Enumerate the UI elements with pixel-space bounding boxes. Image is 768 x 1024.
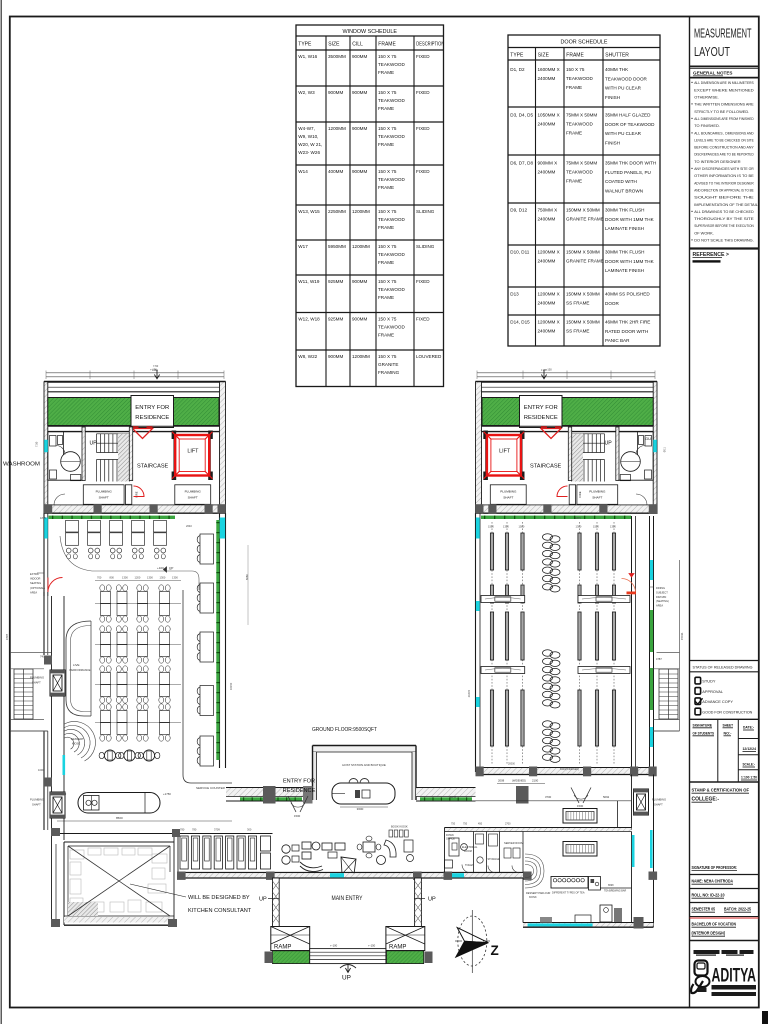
svg-text:PLUMBING: PLUMBING [185, 490, 202, 494]
svg-text:DOOR: DOOR [605, 301, 619, 306]
svg-text:FRAME: FRAME [566, 52, 584, 58]
svg-text:W20, W 21,: W20, W 21, [298, 142, 322, 147]
svg-text:TEAKWOOD: TEAKWOOD [378, 62, 405, 67]
svg-text:ALL BOUNDARIES , DIMENSIONS: ALL BOUNDARIES , DIMENSIONS AND [694, 130, 754, 135]
svg-text:LIVE: LIVE [73, 663, 80, 667]
svg-text:1200MM X: 1200MM X [538, 292, 560, 297]
svg-text:+-150: +-150 [150, 368, 157, 372]
svg-text:STAIRCASE: STAIRCASE [137, 464, 169, 470]
svg-text:1300: 1300 [576, 525, 582, 529]
svg-text:40MM SS POLISHED: 40MM SS POLISHED [605, 292, 650, 297]
svg-text:FRAME: FRAME [378, 185, 394, 190]
svg-text:ENTRY FOR: ENTRY FOR [524, 405, 558, 411]
svg-text:2640: 2640 [186, 524, 192, 528]
svg-text:150 X 75: 150 X 75 [378, 279, 397, 284]
svg-text:ALL DIMENSION ARE IN MILLIMETE: ALL DIMENSION ARE IN MILLIMETERS [694, 80, 754, 85]
svg-text:GOOD FOR CONSTRUCTION: GOOD FOR CONSTRUCTION [702, 710, 752, 715]
svg-text:W4-W7,: W4-W7, [298, 126, 315, 131]
svg-text:1:100 1:50: 1:100 1:50 [741, 776, 757, 780]
svg-text:GROUND FLOOR:9500SQFT: GROUND FLOOR:9500SQFT [312, 727, 377, 733]
svg-text:DINING: DINING [656, 586, 665, 590]
svg-text:FINISH: FINISH [605, 95, 620, 100]
svg-text:780: 780 [180, 828, 185, 832]
svg-text:46MM THK 2HR FIRE: 46MM THK 2HR FIRE [605, 320, 650, 325]
svg-text:GRANITE FRAME: GRANITE FRAME [566, 259, 604, 264]
svg-text:TEAKWOOD DOOR: TEAKWOOD DOOR [605, 76, 648, 81]
svg-text:FRAME: FRAME [566, 131, 582, 136]
svg-text:DESCRIPTION: DESCRIPTION [416, 42, 444, 48]
svg-text:SERVICE COUNTER: SERVICE COUNTER [196, 786, 226, 790]
svg-text:TEAKWOOD: TEAKWOOD [378, 287, 405, 292]
svg-text:900MM: 900MM [328, 354, 343, 359]
svg-text:1000: 1000 [38, 768, 44, 772]
svg-text:DESSERT: DESSERT [71, 737, 84, 741]
svg-text:FIXED: FIXED [416, 126, 430, 131]
svg-text:PLUMBING: PLUMBING [500, 490, 517, 494]
svg-text:APPROVAL: APPROVAL [702, 689, 724, 694]
svg-text:FRAME: FRAME [378, 106, 394, 111]
svg-text:1500: 1500 [577, 804, 584, 808]
svg-text:(SEATING): (SEATING) [656, 599, 669, 603]
svg-text:2400MM: 2400MM [538, 329, 556, 334]
svg-text:1500: 1500 [488, 525, 494, 529]
svg-text:7.50: 7.50 [663, 447, 667, 453]
svg-text:FRAME: FRAME [378, 42, 396, 48]
svg-text:150 X 75: 150 X 75 [378, 317, 397, 322]
svg-text:KITCHEN CONSULTANT: KITCHEN CONSULTANT [188, 908, 252, 914]
svg-text:300: 300 [247, 828, 252, 832]
svg-text:TEAKWOOD: TEAKWOOD [378, 252, 405, 257]
svg-text:750: 750 [463, 823, 468, 826]
svg-text:BOOK KIOSK: BOOK KIOSK [391, 825, 408, 829]
svg-text:16150: 16150 [467, 690, 471, 698]
svg-text:1500: 1500 [593, 525, 599, 529]
svg-text:35MM THK DOOR WITH: 35MM THK DOOR WITH [605, 161, 656, 166]
svg-text:6255: 6255 [450, 795, 457, 799]
svg-text:SIGNATURE OF PROFESSOR:: SIGNATURE OF PROFESSOR: [692, 865, 738, 870]
svg-text:WITH PU CLEAR: WITH PU CLEAR [605, 131, 642, 136]
svg-text:1200: 1200 [135, 576, 141, 580]
svg-text:GU: GU [645, 436, 651, 441]
svg-text:BATCH: 2022-25: BATCH: 2022-25 [724, 907, 751, 912]
svg-text:UP: UP [90, 441, 98, 447]
svg-text:AND DIRECTION OR APPROVAL IS T: AND DIRECTION OR APPROVAL IS TO BE [694, 187, 754, 192]
svg-text:UP: UP [342, 975, 351, 982]
svg-text:LIFT: LIFT [499, 449, 511, 455]
svg-text:TYPE: TYPE [510, 52, 524, 58]
svg-text:8698: 8698 [608, 884, 614, 887]
svg-text:SCALE:-: SCALE:- [743, 763, 756, 767]
svg-text:ALL DRAWINGS TO BE CHE: ALL DRAWINGS TO BE CHECKED [694, 209, 754, 214]
svg-text:1300: 1300 [160, 576, 166, 580]
svg-text:6400(WIDENED): 6400(WIDENED) [560, 768, 579, 771]
svg-text:SLIDING: SLIDING [416, 244, 435, 249]
svg-text:+-100: +-100 [330, 944, 338, 948]
svg-text:FIXED: FIXED [416, 90, 430, 95]
svg-text:W12, W18: W12, W18 [298, 317, 320, 322]
svg-text:W8, W22: W8, W22 [298, 354, 317, 359]
svg-text:1300: 1300 [122, 576, 128, 580]
svg-text:+1750: +1750 [163, 792, 171, 796]
svg-text:1300: 1300 [503, 525, 509, 529]
svg-text:REFERENCE >: REFERENCE > [693, 252, 729, 258]
svg-text:FRAMING: FRAMING [378, 370, 400, 375]
svg-text:RAMP: RAMP [389, 945, 406, 951]
svg-text:UP: UP [605, 441, 613, 447]
svg-text:900MM: 900MM [352, 317, 367, 322]
svg-text:ENTRY FOR: ENTRY FOR [135, 405, 169, 411]
svg-text:700: 700 [97, 576, 102, 580]
svg-text:ADITYA: ADITYA [712, 966, 757, 987]
svg-text:1600MM X: 1600MM X [538, 67, 560, 72]
svg-text:THOROUGHLY BY THE: THOROUGHLY BY THE SITE [694, 216, 754, 221]
svg-text:2400MM: 2400MM [538, 170, 556, 175]
svg-text:ROLL NO: ID-22-10: ROLL NO: ID-22-10 [692, 893, 725, 898]
svg-text:ANY DISCREPANCIES WITH SITE: ANY DISCREPANCIES WITH SITE OR [694, 166, 754, 171]
svg-text:1200MM: 1200MM [352, 209, 370, 214]
svg-text:1200MM: 1200MM [352, 244, 370, 249]
svg-text:NAME: NEHA CHITRODA: NAME: NEHA CHITRODA [692, 879, 734, 884]
svg-text:7.50: 7.50 [35, 441, 39, 447]
svg-text:GENERAL NOTES: GENERAL NOTES [693, 71, 732, 76]
svg-text:TEAKWOOD: TEAKWOOD [566, 76, 593, 81]
svg-text:30MM THK FLUSH: 30MM THK FLUSH [605, 250, 644, 255]
svg-text:1200MM X: 1200MM X [538, 320, 560, 325]
svg-text:SHAFT: SHAFT [32, 803, 41, 807]
svg-text:RESIDENCE: RESIDENCE [283, 788, 316, 794]
svg-text:TEAKWOOD: TEAKWOOD [378, 217, 405, 222]
svg-text:FRAME: FRAME [378, 225, 394, 230]
svg-text:STATUS OF RELEASED DRAWING: STATUS OF RELEASED DRAWING [693, 665, 753, 670]
svg-text:D9, D12: D9, D12 [510, 208, 527, 213]
svg-text:STUDY: STUDY [702, 679, 716, 684]
svg-text:AREA: AREA [656, 604, 663, 608]
svg-text:FINISH: FINISH [605, 140, 620, 145]
svg-text:RATED DOOR WITH: RATED DOOR WITH [605, 329, 648, 334]
svg-text:FRAME: FRAME [566, 179, 582, 184]
svg-text:DESSERT PARLOUR: DESSERT PARLOUR [526, 892, 551, 895]
svg-text:SHAFT: SHAFT [503, 496, 513, 500]
svg-text:DISCREPANCIES ARE TO BE REPORT: DISCREPANCIES ARE TO BE REPORTED [694, 152, 754, 157]
svg-text:30MM THK FLUSH: 30MM THK FLUSH [605, 208, 644, 213]
svg-text:SHAFT: SHAFT [654, 803, 663, 807]
svg-text:IMPLEMENTATION OF THE DETAIL.: IMPLEMENTATION OF THE DETAIL. [694, 202, 759, 207]
svg-text:1300: 1300 [610, 525, 616, 529]
svg-text:SLIDING: SLIDING [416, 209, 435, 214]
svg-text:PLUMBING: PLUMBING [589, 490, 606, 494]
svg-text:900MM: 900MM [352, 90, 367, 95]
svg-text:D3, D4, D5: D3, D4, D5 [510, 113, 533, 118]
svg-text:2400MM: 2400MM [538, 76, 556, 81]
svg-text:CILL: CILL [352, 42, 363, 48]
svg-text:GRANITE FRAME: GRANITE FRAME [566, 217, 604, 222]
svg-text:3500MM: 3500MM [328, 54, 346, 59]
svg-text:W14: W14 [298, 169, 308, 174]
svg-text:+-150: +-150 [545, 368, 552, 372]
svg-text:DOOR OF TEAKWOOD: DOOR OF TEAKWOOD [605, 122, 655, 127]
svg-text:15011: 15011 [680, 632, 684, 640]
svg-text:SOUGHT BEFORE TH: SOUGHT BEFORE THE [694, 195, 754, 200]
svg-text:Z: Z [491, 943, 499, 958]
svg-text:OF STUDENTS: OF STUDENTS [693, 732, 715, 736]
svg-text:2008: 2008 [498, 779, 505, 783]
svg-text:4787: 4787 [656, 657, 662, 661]
svg-text:2250MM: 2250MM [328, 209, 346, 214]
svg-text:750: 750 [451, 823, 456, 826]
svg-text:FIXED: FIXED [416, 54, 430, 59]
svg-text:900MM: 900MM [328, 90, 343, 95]
svg-text:W23- W26: W23- W26 [298, 150, 320, 155]
svg-text:900MM: 900MM [352, 279, 367, 284]
svg-text:PLUMBING: PLUMBING [652, 798, 666, 802]
svg-text:FIXED: FIXED [416, 279, 430, 284]
svg-text:FRAME: FRAME [378, 70, 394, 75]
svg-text:3709: 3709 [214, 828, 220, 832]
svg-text:SIGNATURE: SIGNATURE [693, 724, 713, 728]
svg-text:12/12/24: 12/12/24 [743, 747, 757, 751]
svg-text:UP: UP [428, 897, 436, 903]
svg-text:ALL DIMENSIONS ARE FROM FINISH: ALL DIMENSIONS ARE FROM FINISHED [694, 116, 754, 121]
svg-text:925MM: 925MM [328, 317, 343, 322]
svg-text:1875: 1875 [40, 516, 46, 520]
svg-text:OFFICE: OFFICE [446, 838, 455, 841]
svg-text:150 X 75: 150 X 75 [378, 54, 397, 59]
svg-text:BACHELOR OF VOCATION: BACHELOR OF VOCATION [692, 922, 737, 927]
svg-text:SS FRAME: SS FRAME [566, 329, 589, 334]
svg-text:3700: 3700 [545, 795, 552, 799]
svg-text:1200MM X: 1200MM X [538, 250, 560, 255]
svg-text:ADVISED TO THE INTERIOR DESIGN: ADVISED TO THE INTERIOR DESIGNER [694, 180, 754, 185]
svg-text:900MM X: 900MM X [538, 161, 558, 166]
svg-text:MEASUREMENT: MEASUREMENT [694, 26, 752, 41]
svg-text:OTHERWISE.: OTHERWISE. [694, 95, 719, 100]
svg-text:KIOSK: KIOSK [72, 742, 80, 746]
svg-text:D1, D2: D1, D2 [510, 67, 525, 72]
svg-text:150 X 75: 150 X 75 [378, 244, 397, 249]
svg-text:3600: 3600 [357, 807, 364, 811]
svg-text:150MM X 50MM: 150MM X 50MM [566, 292, 600, 297]
svg-text:FIXED: FIXED [416, 169, 430, 174]
svg-text:SIZE: SIZE [538, 52, 550, 58]
svg-text:TEAKWOOD: TEAKWOOD [378, 177, 405, 182]
svg-text:OTHER INFORMATION IS TO: OTHER INFORMATION IS TO BE [694, 173, 754, 178]
svg-text:FRAME: FRAME [378, 260, 394, 265]
svg-text:SUBJECT: SUBJECT [656, 590, 668, 594]
svg-text:DIM MIN: DIM MIN [656, 595, 666, 599]
svg-text:150 X 75: 150 X 75 [378, 126, 397, 131]
svg-text:2700: 2700 [505, 823, 511, 826]
svg-text:SHEET: SHEET [723, 724, 734, 728]
svg-text:KIOSK: KIOSK [529, 896, 537, 899]
svg-text:900MM: 900MM [352, 54, 367, 59]
svg-text:TEAKWOOD: TEAKWOOD [378, 134, 405, 139]
svg-text:150 X 75: 150 X 75 [378, 209, 397, 214]
svg-text:W11, W19: W11, W19 [298, 279, 320, 284]
svg-text:ADVANCE COPY: ADVANCE COPY [702, 699, 733, 704]
svg-text:LEVELS ARE TO BE CHECKED ON S: LEVELS ARE TO BE CHECKED ON SITE [694, 137, 754, 142]
svg-text:SHAFT: SHAFT [32, 681, 41, 685]
svg-text:EXTRA: EXTRA [30, 572, 39, 576]
svg-text:+-150: +-150 [368, 944, 376, 948]
svg-text:WASHROOM: WASHROOM [3, 462, 41, 468]
svg-text:1500: 1500 [294, 814, 301, 818]
svg-text:RESIDENCE: RESIDENCE [524, 415, 558, 421]
svg-text:SEMESTER 05: SEMESTER 05 [692, 907, 716, 912]
svg-text:20000: 20000 [508, 763, 516, 766]
svg-text:400MM: 400MM [328, 169, 343, 174]
svg-text:FRAME: FRAME [378, 142, 394, 147]
svg-text:925MM: 925MM [328, 279, 343, 284]
svg-text:1300: 1300 [147, 576, 153, 580]
svg-text:6080: 6080 [245, 574, 249, 580]
svg-text:DOOR WITH 1MM THK: DOOR WITH 1MM THK [605, 217, 655, 222]
svg-text:TO FINISHED.: TO FINISHED. [694, 123, 720, 128]
svg-text:SHAFT: SHAFT [592, 496, 602, 500]
svg-text:1200MM: 1200MM [352, 354, 370, 359]
svg-text:TYPE: TYPE [298, 42, 312, 48]
svg-text:TEAKWOOD: TEAKWOOD [566, 122, 593, 127]
svg-text:2400MM: 2400MM [538, 259, 556, 264]
svg-text:MAIN ENTRY: MAIN ENTRY [332, 896, 363, 902]
svg-text:COATED WITH: COATED WITH [605, 179, 637, 184]
svg-text:2100: 2100 [532, 779, 539, 783]
svg-text:OF WORK.: OF WORK. [694, 230, 714, 235]
svg-text:5950MM: 5950MM [328, 244, 346, 249]
svg-text:STAIRCASE: STAIRCASE [530, 464, 562, 470]
svg-text:900MM: 900MM [352, 126, 367, 131]
svg-text:150 X 75: 150 X 75 [378, 90, 397, 95]
svg-text:150MM X 50MM: 150MM X 50MM [566, 208, 600, 213]
svg-text:(WIDENED): (WIDENED) [512, 779, 526, 783]
svg-text:SHAFT: SHAFT [188, 496, 198, 500]
svg-text:W17: W17 [298, 244, 308, 249]
svg-text:PANIC BAR: PANIC BAR [605, 338, 630, 343]
svg-text:DATE:-: DATE:- [743, 726, 755, 730]
svg-text:780: 780 [192, 828, 197, 832]
svg-text:D14, D15: D14, D15 [510, 320, 530, 325]
svg-text:D13: D13 [510, 292, 519, 297]
svg-text:PLUMBING: PLUMBING [30, 676, 44, 680]
svg-text:150 X 75: 150 X 75 [378, 354, 397, 359]
svg-text:PLUMBING: PLUMBING [96, 490, 113, 494]
svg-text:HOST STATION AND BOUTIQUE: HOST STATION AND BOUTIQUE [342, 763, 386, 767]
svg-text:LAYOUT: LAYOUT [694, 44, 730, 59]
svg-text:INDOOR: INDOOR [30, 577, 41, 581]
svg-text:DOOR WITH 1MM THK: DOOR WITH 1MM THK [605, 259, 655, 264]
svg-text:900MM: 900MM [352, 169, 367, 174]
svg-text:TEA BREWING BAR: TEA BREWING BAR [604, 890, 626, 893]
svg-text:150 X 75: 150 X 75 [378, 169, 397, 174]
svg-text:DO NOT SCALE THIS DRAWING.: DO NOT SCALE THIS DRAWING. [694, 238, 754, 243]
svg-text:16150: 16150 [229, 682, 233, 690]
svg-text:THE WRITTEN DIMENSIONS A: THE WRITTEN DIMENSIONS ARE [694, 102, 754, 107]
svg-text:FIXED: FIXED [416, 317, 430, 322]
svg-text:SEATING: SEATING [30, 581, 41, 585]
svg-text:FLUTED PANELS, PU: FLUTED PANELS, PU [605, 170, 651, 175]
svg-text:RAMP: RAMP [274, 945, 291, 951]
svg-text:BEFORE CONSTRUCTION AND: BEFORE CONSTRUCTION AND ANY [694, 145, 754, 150]
svg-text:TEAKWOOD: TEAKWOOD [378, 325, 405, 330]
svg-text:LIFT: LIFT [187, 449, 199, 455]
svg-text:35MM HALF GLAZED: 35MM HALF GLAZED [605, 113, 651, 118]
svg-text:1500: 1500 [519, 525, 525, 529]
svg-text:UP: UP [169, 567, 173, 571]
svg-text:COLLEGE:-: COLLEGE:- [692, 797, 720, 803]
svg-text:EXCEPT WHERE MENTIONED: EXCEPT WHERE MENTIONED [694, 87, 754, 92]
svg-text:WITH PU CLEAR: WITH PU CLEAR [605, 86, 642, 91]
svg-text:SIZE: SIZE [328, 42, 340, 48]
svg-text:1050MM X: 1050MM X [538, 113, 560, 118]
svg-text:TEAKWOOD: TEAKWOOD [566, 170, 593, 175]
svg-text:W2, W3: W2, W3 [298, 90, 315, 95]
svg-text:FRAME: FRAME [566, 85, 582, 90]
svg-text:LAMINATE FINISH: LAMINATE FINISH [605, 268, 644, 273]
svg-text:UP: UP [259, 897, 267, 903]
svg-text:DOOR SCHEDULE: DOOR SCHEDULE [560, 40, 607, 46]
svg-text:2400MM: 2400MM [538, 301, 556, 306]
svg-text:W9, W10,: W9, W10, [298, 134, 318, 139]
svg-text:D10, D11: D10, D11 [510, 250, 530, 255]
svg-text:RESIDENCE: RESIDENCE [135, 415, 169, 421]
svg-text:WILL BE DESIGNED BY: WILL BE DESIGNED BY [188, 895, 250, 901]
svg-text:STAMP & CERTIFICATION OF: STAMP & CERTIFICATION OF [692, 788, 750, 794]
svg-text:TO INTERIOR DESIGNER: TO INTERIOR DESIGNER [694, 159, 741, 164]
svg-text:ROOM: ROOM [464, 850, 472, 853]
svg-text:ELECTRICAL: ELECTRICAL [462, 846, 478, 849]
svg-text:GRANITE: GRANITE [378, 362, 398, 367]
svg-text:STRICTLY TO BE FOLLOWED.: STRICTLY TO BE FOLLOWED. [694, 109, 749, 114]
svg-text:8500: 8500 [116, 816, 123, 820]
svg-text:FRAME: FRAME [378, 333, 394, 338]
svg-text:ENTRY FOR: ENTRY FOR [283, 779, 315, 785]
svg-text:SERVER ROOM: SERVER ROOM [504, 841, 523, 845]
svg-text:PERFORMANCE: PERFORMANCE [70, 668, 91, 672]
svg-text:40MM THK: 40MM THK [605, 67, 629, 72]
svg-text:TOILET: TOILET [465, 864, 474, 867]
svg-text:1300: 1300 [172, 576, 178, 580]
svg-text:SUPERVISOR BEFORE THE EXECUTIO: SUPERVISOR BEFORE THE EXECUTION [694, 223, 754, 228]
svg-text:NO:-: NO:- [724, 732, 733, 736]
svg-text:FRAME: FRAME [378, 295, 394, 300]
svg-text:150 X 75: 150 X 75 [566, 67, 585, 72]
svg-text:DIFFERENT TYPES OF TEA: DIFFERENT TYPES OF TEA [552, 892, 585, 895]
svg-text:2400MM: 2400MM [538, 217, 556, 222]
svg-text:AREA: AREA [30, 590, 37, 594]
svg-text:6787: 6787 [5, 633, 9, 640]
svg-text:D6, D7, D8: D6, D7, D8 [510, 161, 533, 166]
svg-text:5092: 5092 [603, 795, 610, 799]
svg-text:750MM X: 750MM X [538, 208, 558, 213]
svg-text:SHUTTER: SHUTTER [605, 52, 629, 58]
svg-text:450: 450 [478, 823, 483, 826]
svg-text:FIRE: FIRE [578, 491, 582, 497]
svg-text:150MM X 50MM: 150MM X 50MM [566, 320, 600, 325]
svg-text:75MM X 50MM: 75MM X 50MM [566, 113, 597, 118]
svg-text:W1, W16: W1, W16 [298, 54, 317, 59]
svg-text:LOUVERED: LOUVERED [416, 354, 442, 359]
svg-text:75MM X 50MM: 75MM X 50MM [566, 161, 597, 166]
svg-text:SHAFT: SHAFT [99, 496, 109, 500]
svg-text:(OPTIONAL): (OPTIONAL) [30, 586, 45, 590]
svg-text:TEAKWOOD: TEAKWOOD [378, 98, 405, 103]
svg-text:150MM X 50MM: 150MM X 50MM [566, 250, 600, 255]
svg-text:1200MM: 1200MM [328, 126, 346, 131]
svg-text:SS FRAME: SS FRAME [566, 301, 589, 306]
svg-text:7-50: 7-50 [153, 364, 159, 368]
svg-text:STORAGE: STORAGE [488, 858, 501, 861]
svg-text:WINDOW SCHEDULE: WINDOW SCHEDULE [342, 29, 397, 35]
svg-text:W13, W15: W13, W15 [298, 209, 320, 214]
